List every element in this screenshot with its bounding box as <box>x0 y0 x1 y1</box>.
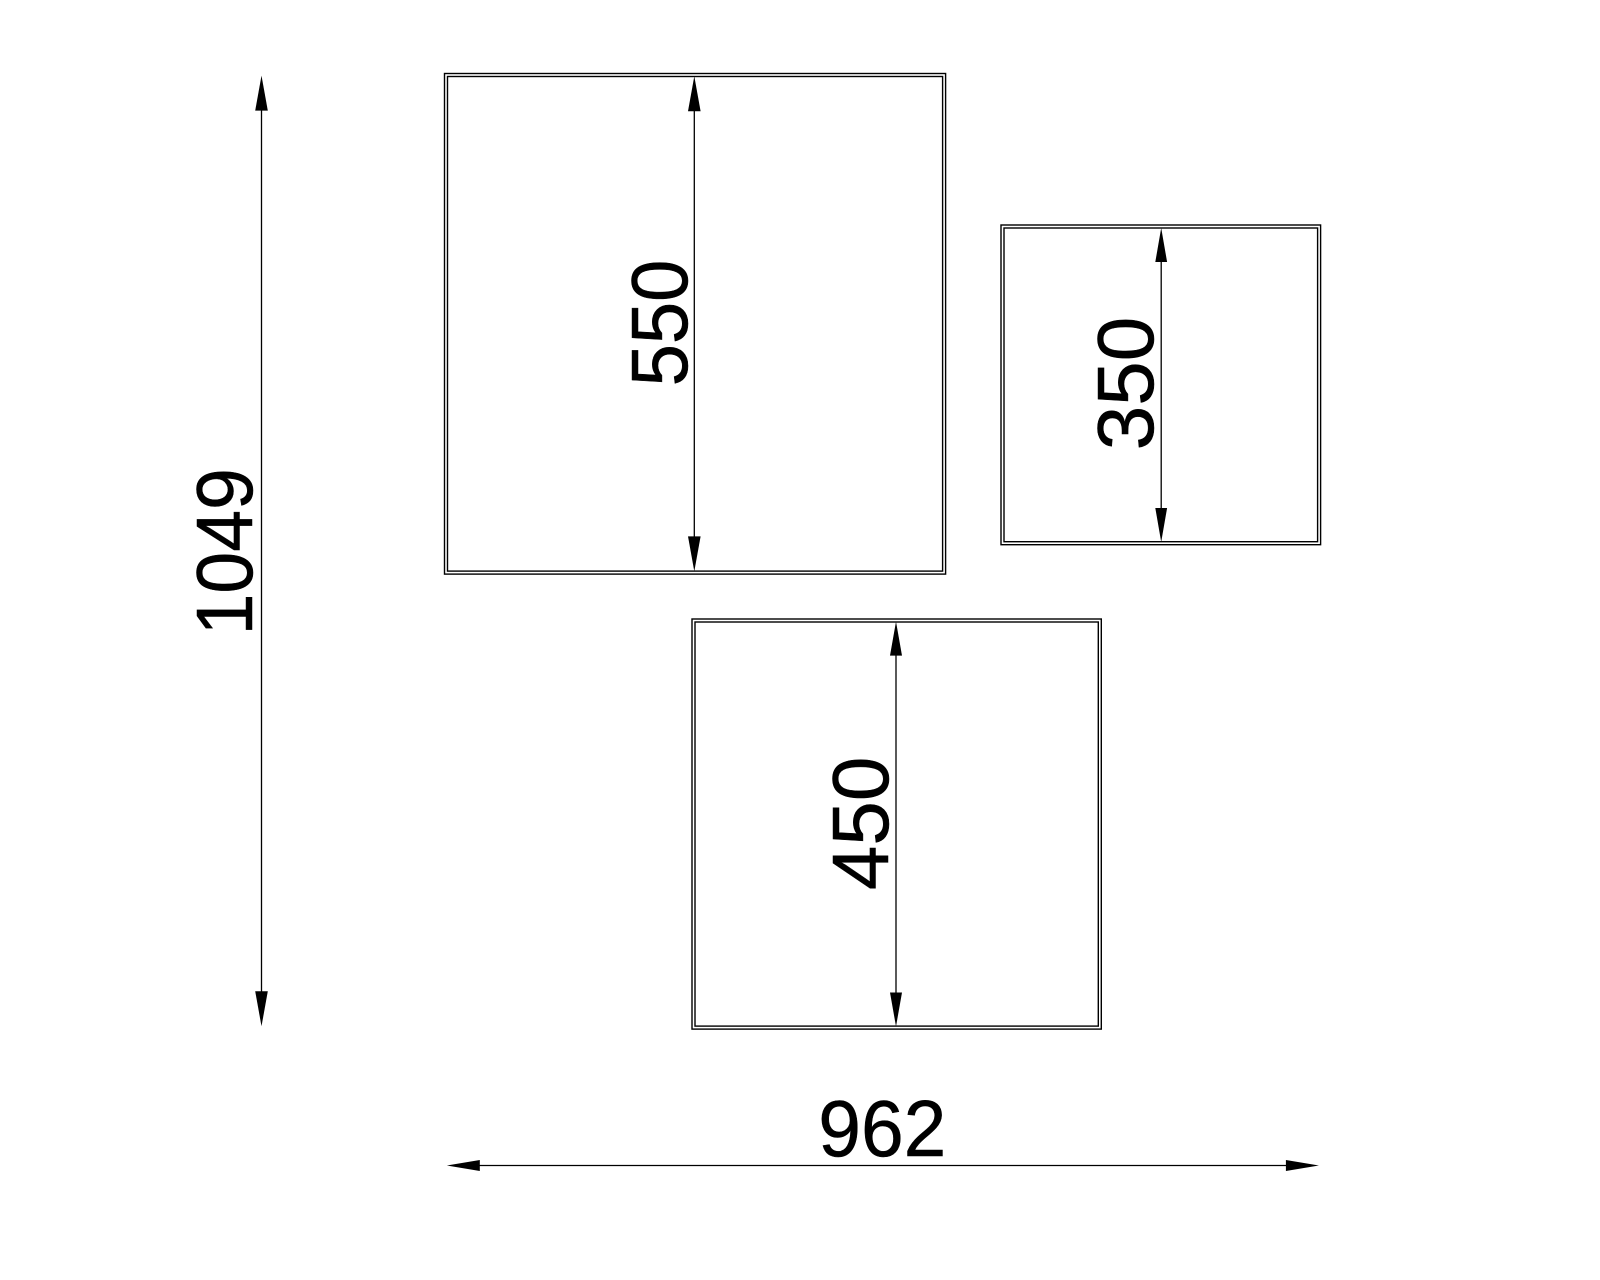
svg-text:1049: 1049 <box>181 468 270 635</box>
svg-text:962: 962 <box>818 1084 946 1174</box>
svg-text:550: 550 <box>614 260 704 387</box>
svg-text:450: 450 <box>816 757 905 890</box>
svg-text:350: 350 <box>1081 317 1170 450</box>
